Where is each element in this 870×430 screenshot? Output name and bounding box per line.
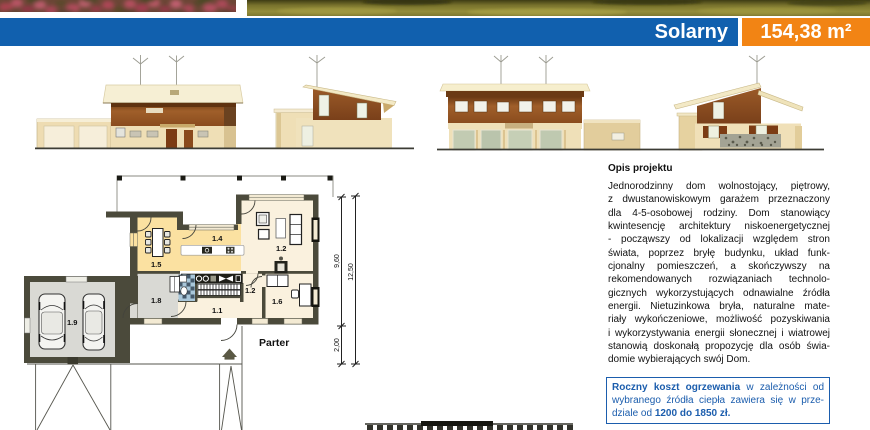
svg-text:1.5: 1.5 <box>151 260 161 269</box>
svg-text:9,60: 9,60 <box>334 254 341 268</box>
svg-text:2,00: 2,00 <box>334 338 341 352</box>
svg-text:12,50: 12,50 <box>348 263 355 281</box>
svg-text:1.2: 1.2 <box>276 244 286 253</box>
svg-text:1.6: 1.6 <box>272 297 282 306</box>
svg-text:1.1: 1.1 <box>212 306 222 315</box>
svg-text:1.4: 1.4 <box>212 234 223 243</box>
svg-text:1.2: 1.2 <box>245 286 255 295</box>
svg-text:1.9: 1.9 <box>67 318 77 327</box>
svg-text:Parter: Parter <box>259 337 289 349</box>
svg-text:1.8: 1.8 <box>151 296 161 305</box>
